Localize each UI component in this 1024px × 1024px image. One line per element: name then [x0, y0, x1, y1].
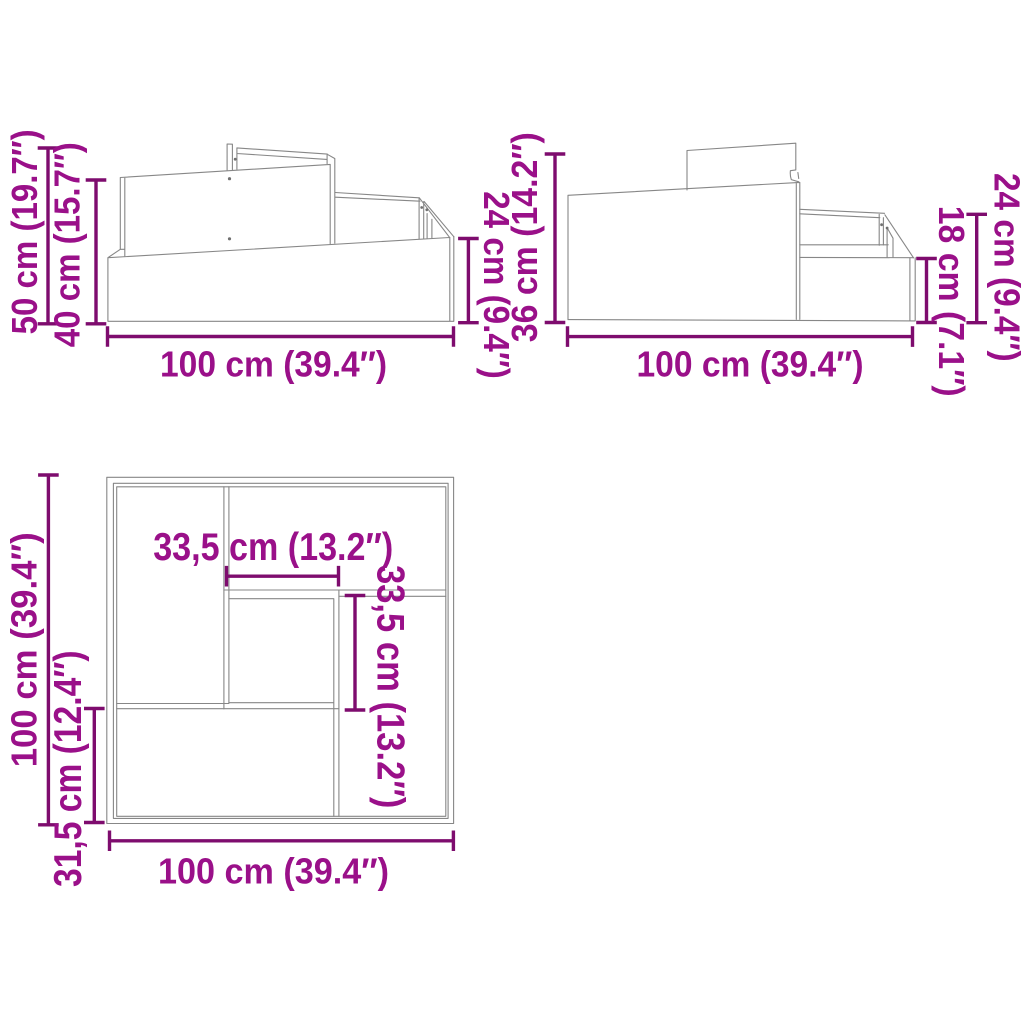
svg-text:31,5 cm (12.4″): 31,5 cm (12.4″) [47, 650, 90, 887]
svg-text:40 cm (15.7″): 40 cm (15.7″) [48, 142, 88, 347]
svg-text:50 cm (19.7″): 50 cm (19.7″) [5, 129, 45, 334]
svg-text:33,5 cm (13.2″): 33,5 cm (13.2″) [369, 565, 412, 809]
svg-text:100 cm (39.4″): 100 cm (39.4″) [5, 532, 45, 767]
svg-text:33,5 cm (13.2″): 33,5 cm (13.2″) [153, 526, 393, 569]
svg-text:100 cm (39.4″): 100 cm (39.4″) [160, 344, 387, 384]
svg-text:18 cm (7.1″): 18 cm (7.1″) [931, 206, 971, 397]
svg-text:36 cm (14.2″): 36 cm (14.2″) [505, 132, 545, 342]
svg-text:100 cm (39.4″): 100 cm (39.4″) [637, 344, 864, 384]
svg-text:100 cm (39.4″): 100 cm (39.4″) [158, 851, 389, 891]
svg-text:24 cm (9.4″): 24 cm (9.4″) [987, 173, 1024, 362]
